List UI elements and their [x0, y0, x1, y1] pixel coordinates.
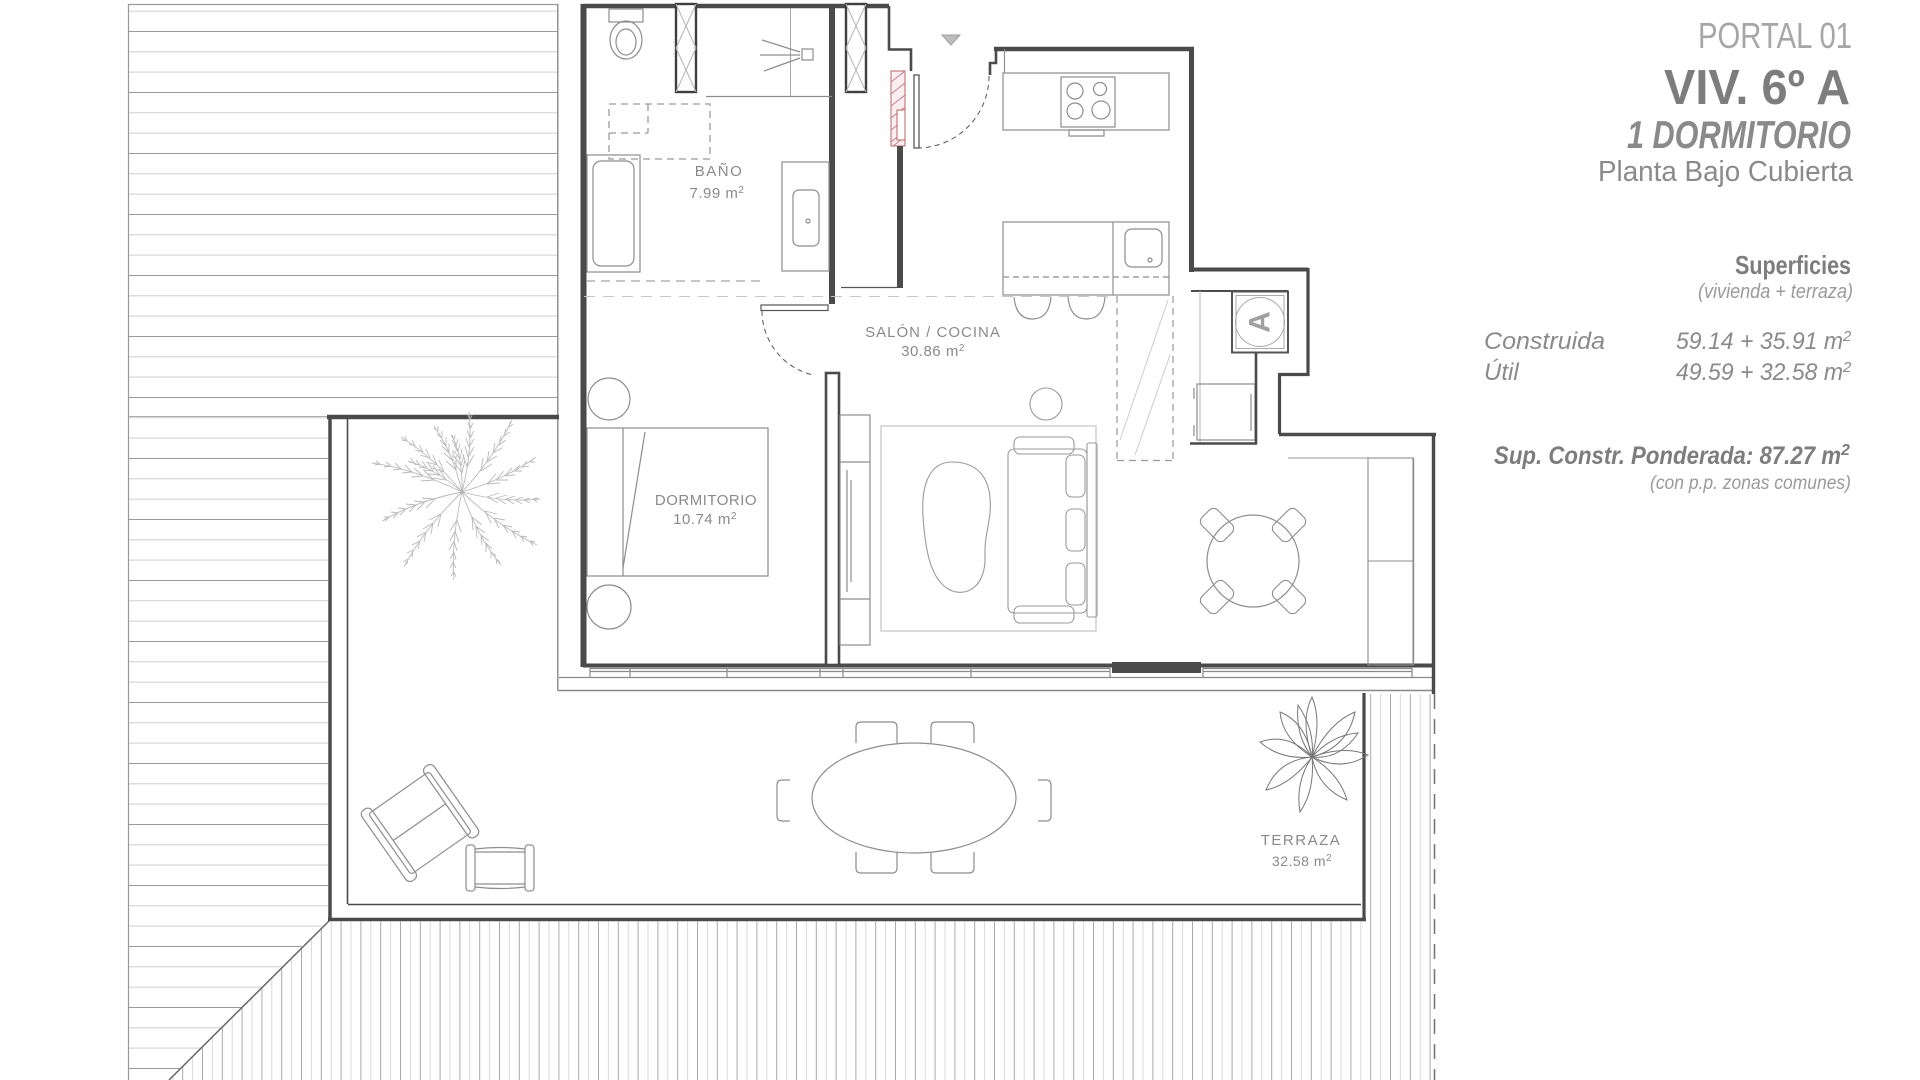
svg-text:2: 2 [1840, 442, 1850, 459]
svg-text:PORTAL 01: PORTAL 01 [1698, 15, 1852, 56]
svg-text:Planta Bajo Cubierta: Planta Bajo Cubierta [1598, 156, 1854, 188]
svg-text:10.74 m2: 10.74 m2 [673, 511, 737, 528]
svg-text:A: A [1244, 311, 1277, 333]
svg-text:VIV. 6º A: VIV. 6º A [1664, 61, 1850, 115]
svg-text:Útil: Útil [1484, 359, 1519, 386]
svg-text:(vivienda + terraza): (vivienda + terraza) [1698, 281, 1853, 303]
svg-text:49.59 + 32.58 m: 49.59 + 32.58 m [1676, 359, 1843, 386]
svg-text:32.58 m2: 32.58 m2 [1272, 853, 1332, 869]
svg-text:59.14 + 35.91 m: 59.14 + 35.91 m [1676, 328, 1843, 355]
svg-text:2: 2 [1842, 359, 1852, 376]
svg-text:2: 2 [1842, 328, 1852, 345]
svg-text:DORMITORIO: DORMITORIO [655, 492, 757, 509]
svg-text:Construida: Construida [1484, 328, 1605, 355]
svg-text:7.99 m2: 7.99 m2 [690, 185, 745, 202]
svg-text:Superficies: Superficies [1735, 250, 1851, 280]
svg-text:1 DORMITORIO: 1 DORMITORIO [1627, 114, 1851, 157]
svg-text:SALÓN / COCINA: SALÓN / COCINA [865, 324, 1001, 341]
svg-text:30.86 m2: 30.86 m2 [901, 343, 965, 360]
svg-text:(con p.p. zonas comunes): (con p.p. zonas comunes) [1650, 473, 1851, 494]
svg-text:TERRAZA: TERRAZA [1261, 832, 1342, 849]
svg-text:BAÑO: BAÑO [695, 163, 744, 180]
svg-text:Sup. Constr. Ponderada: 87.27: Sup. Constr. Ponderada: 87.27 m [1494, 442, 1841, 470]
